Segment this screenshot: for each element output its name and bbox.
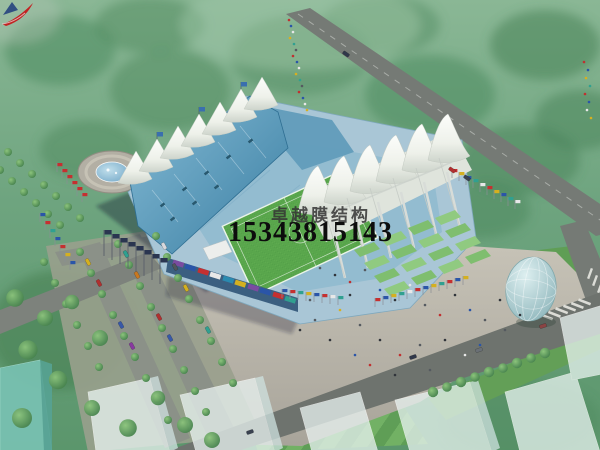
rendering-canvas (0, 0, 600, 450)
teal-tower (0, 360, 52, 450)
stadium-aerial-rendering: 卓越膜结构 15343815143 (0, 0, 600, 450)
